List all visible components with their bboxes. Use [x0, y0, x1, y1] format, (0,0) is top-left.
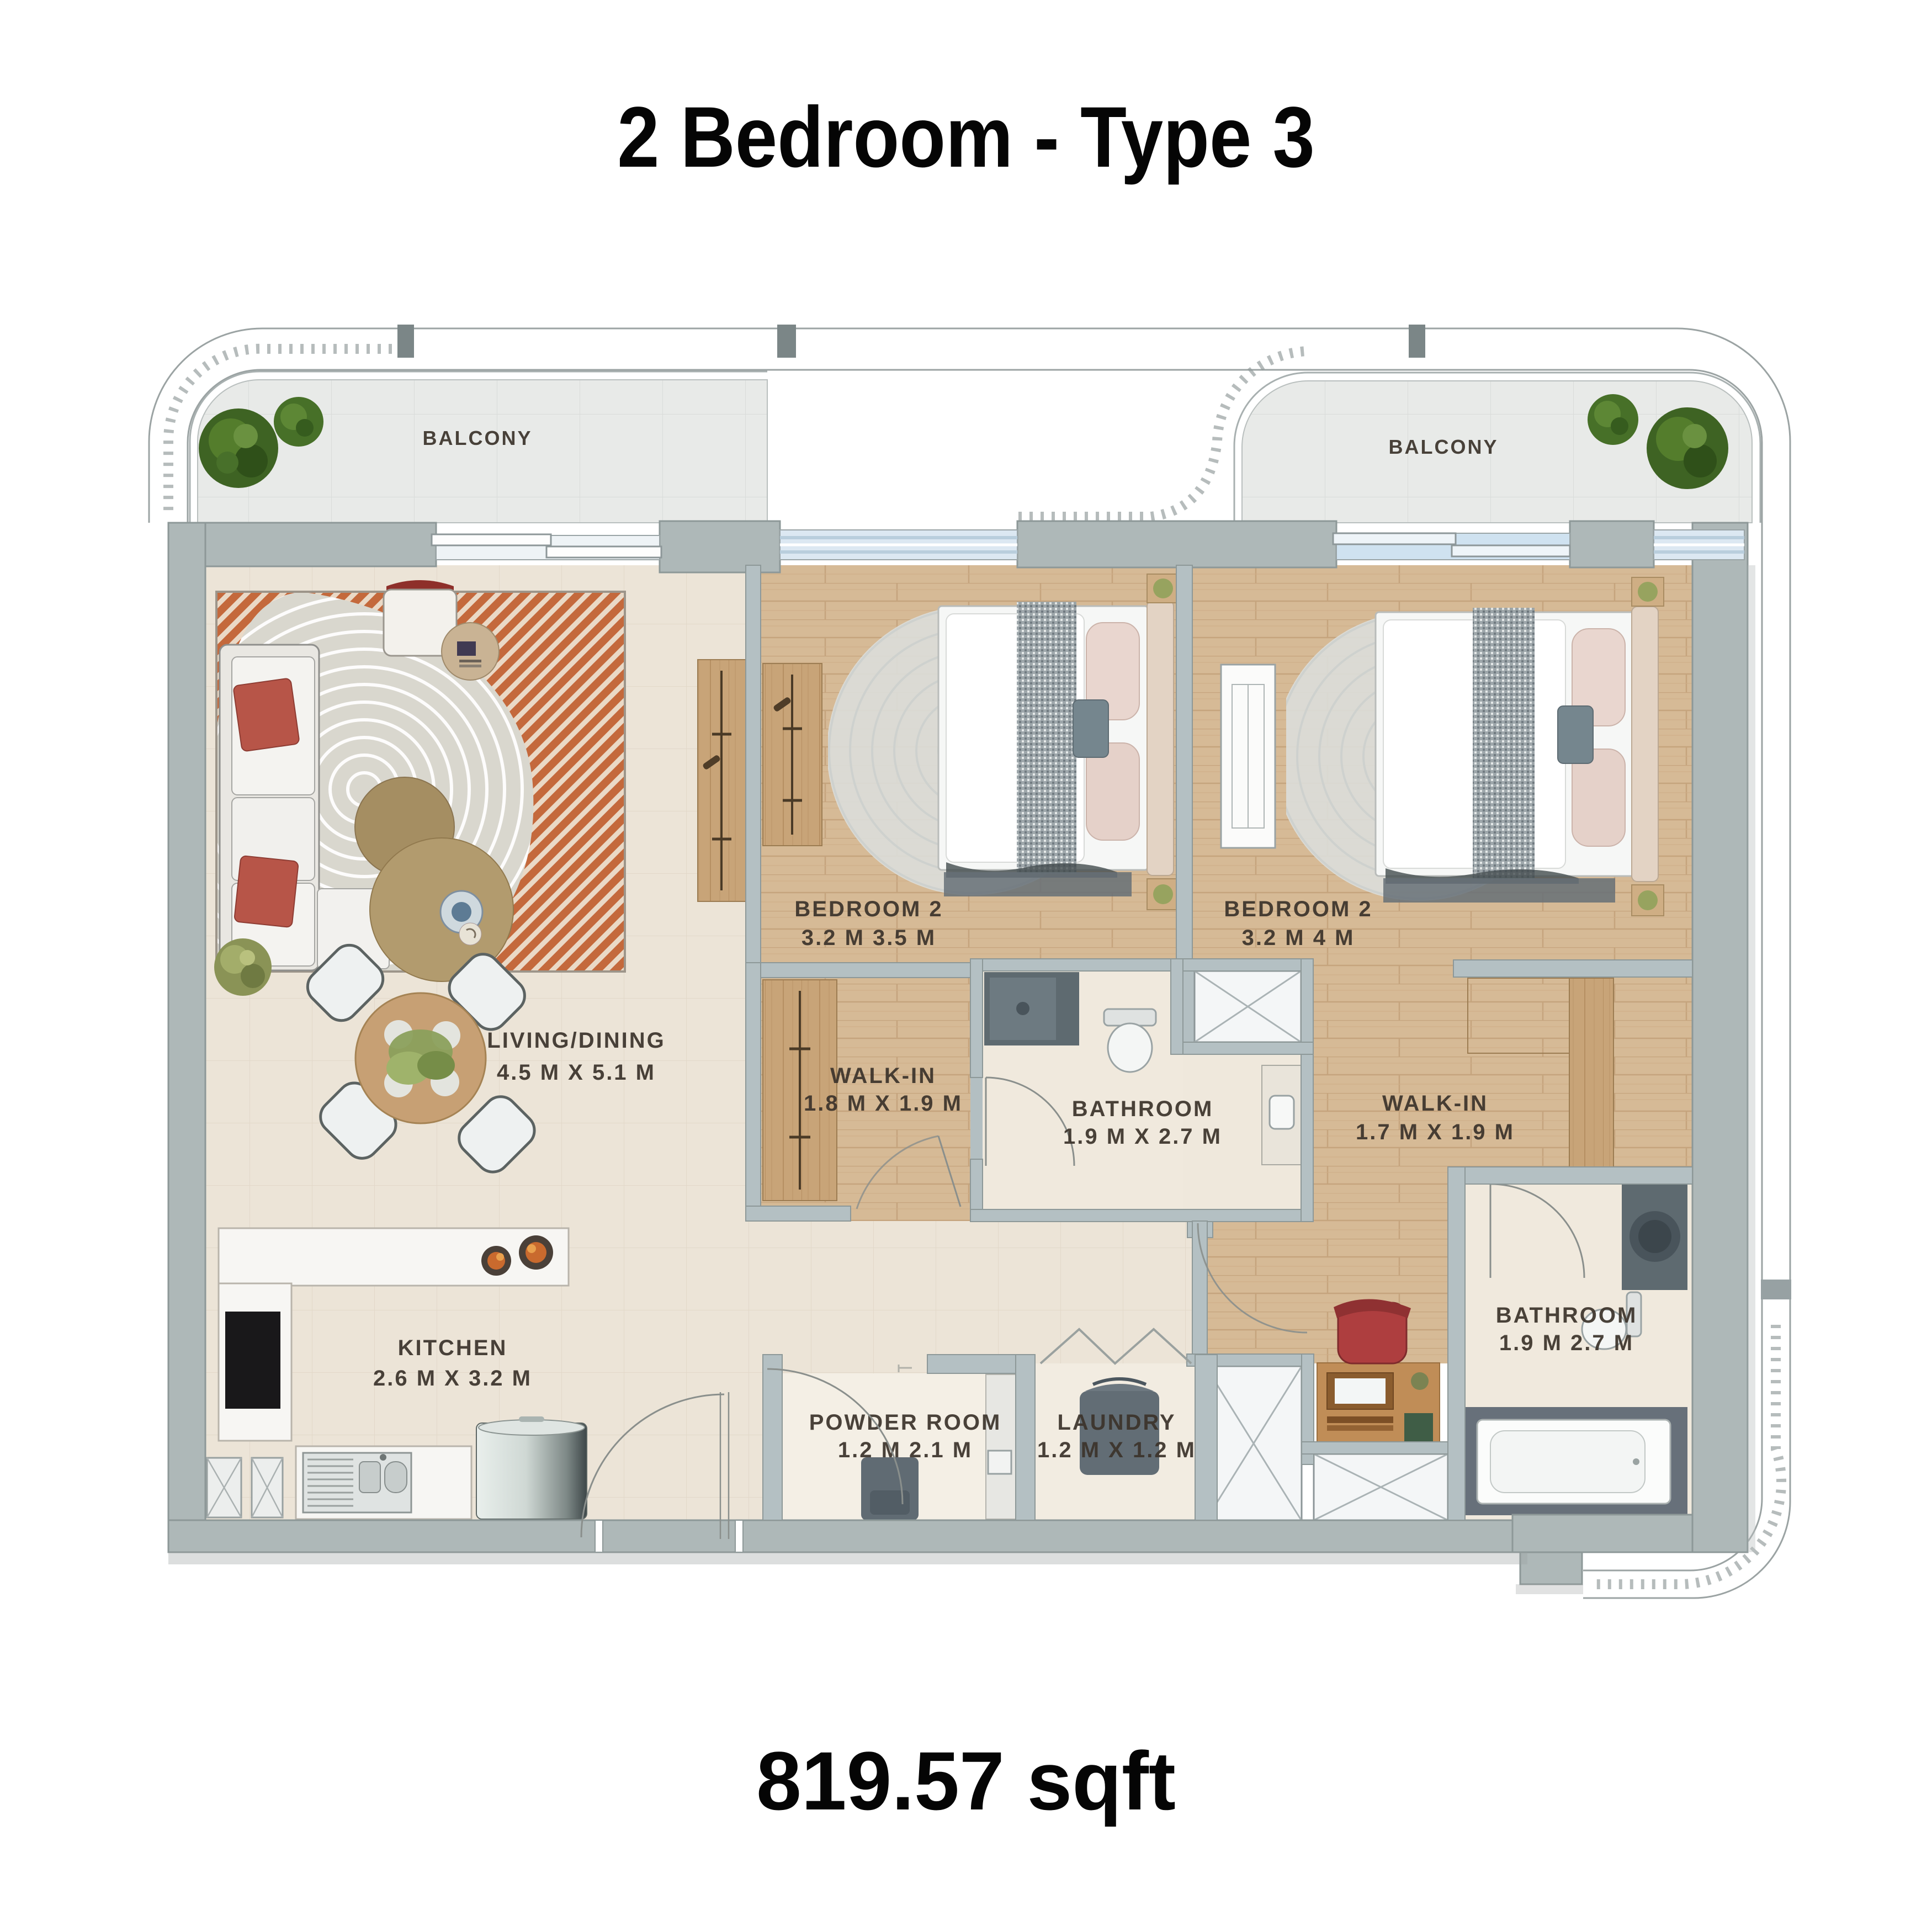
- svg-text:BALCONY: BALCONY: [1389, 436, 1499, 458]
- svg-text:1.9 M 2.7 M: 1.9 M 2.7 M: [1499, 1331, 1634, 1355]
- svg-text:BATHROOM: BATHROOM: [1072, 1097, 1214, 1121]
- svg-text:819.57 sqft: 819.57 sqft: [756, 1735, 1176, 1828]
- svg-text:1.2 M X 1.2 M: 1.2 M X 1.2 M: [1037, 1438, 1196, 1462]
- svg-text:BATHROOM: BATHROOM: [1496, 1303, 1638, 1328]
- svg-text:3.2 M 4 M: 3.2 M 4 M: [1242, 926, 1355, 950]
- svg-text:2 Bedroom - Type 3: 2 Bedroom - Type 3: [617, 89, 1315, 185]
- svg-text:POWDER ROOM: POWDER ROOM: [809, 1410, 1002, 1435]
- svg-text:BEDROOM 2: BEDROOM 2: [1224, 897, 1372, 921]
- svg-text:2.6 M X 3.2 M: 2.6 M X 3.2 M: [373, 1366, 532, 1390]
- svg-text:3.2 M 3.5 M: 3.2 M 3.5 M: [802, 926, 936, 950]
- svg-text:LIVING/DINING: LIVING/DINING: [487, 1028, 665, 1053]
- svg-text:WALK-IN: WALK-IN: [1382, 1091, 1488, 1116]
- svg-text:KITCHEN: KITCHEN: [398, 1336, 508, 1360]
- svg-text:1.2 M 2.1 M: 1.2 M 2.1 M: [838, 1438, 973, 1462]
- svg-text:1.9 M X 2.7 M: 1.9 M X 2.7 M: [1063, 1124, 1222, 1149]
- svg-text:1.8 M X 1.9 M: 1.8 M X 1.9 M: [804, 1091, 963, 1116]
- svg-text:BALCONY: BALCONY: [423, 427, 533, 449]
- svg-text:1.7 M X 1.9 M: 1.7 M X 1.9 M: [1356, 1120, 1515, 1144]
- svg-text:4.5 M X 5.1 M: 4.5 M X 5.1 M: [497, 1060, 656, 1085]
- svg-text:WALK-IN: WALK-IN: [830, 1064, 936, 1088]
- svg-text:BEDROOM 2: BEDROOM 2: [794, 897, 943, 921]
- svg-text:LAUNDRY: LAUNDRY: [1057, 1410, 1176, 1435]
